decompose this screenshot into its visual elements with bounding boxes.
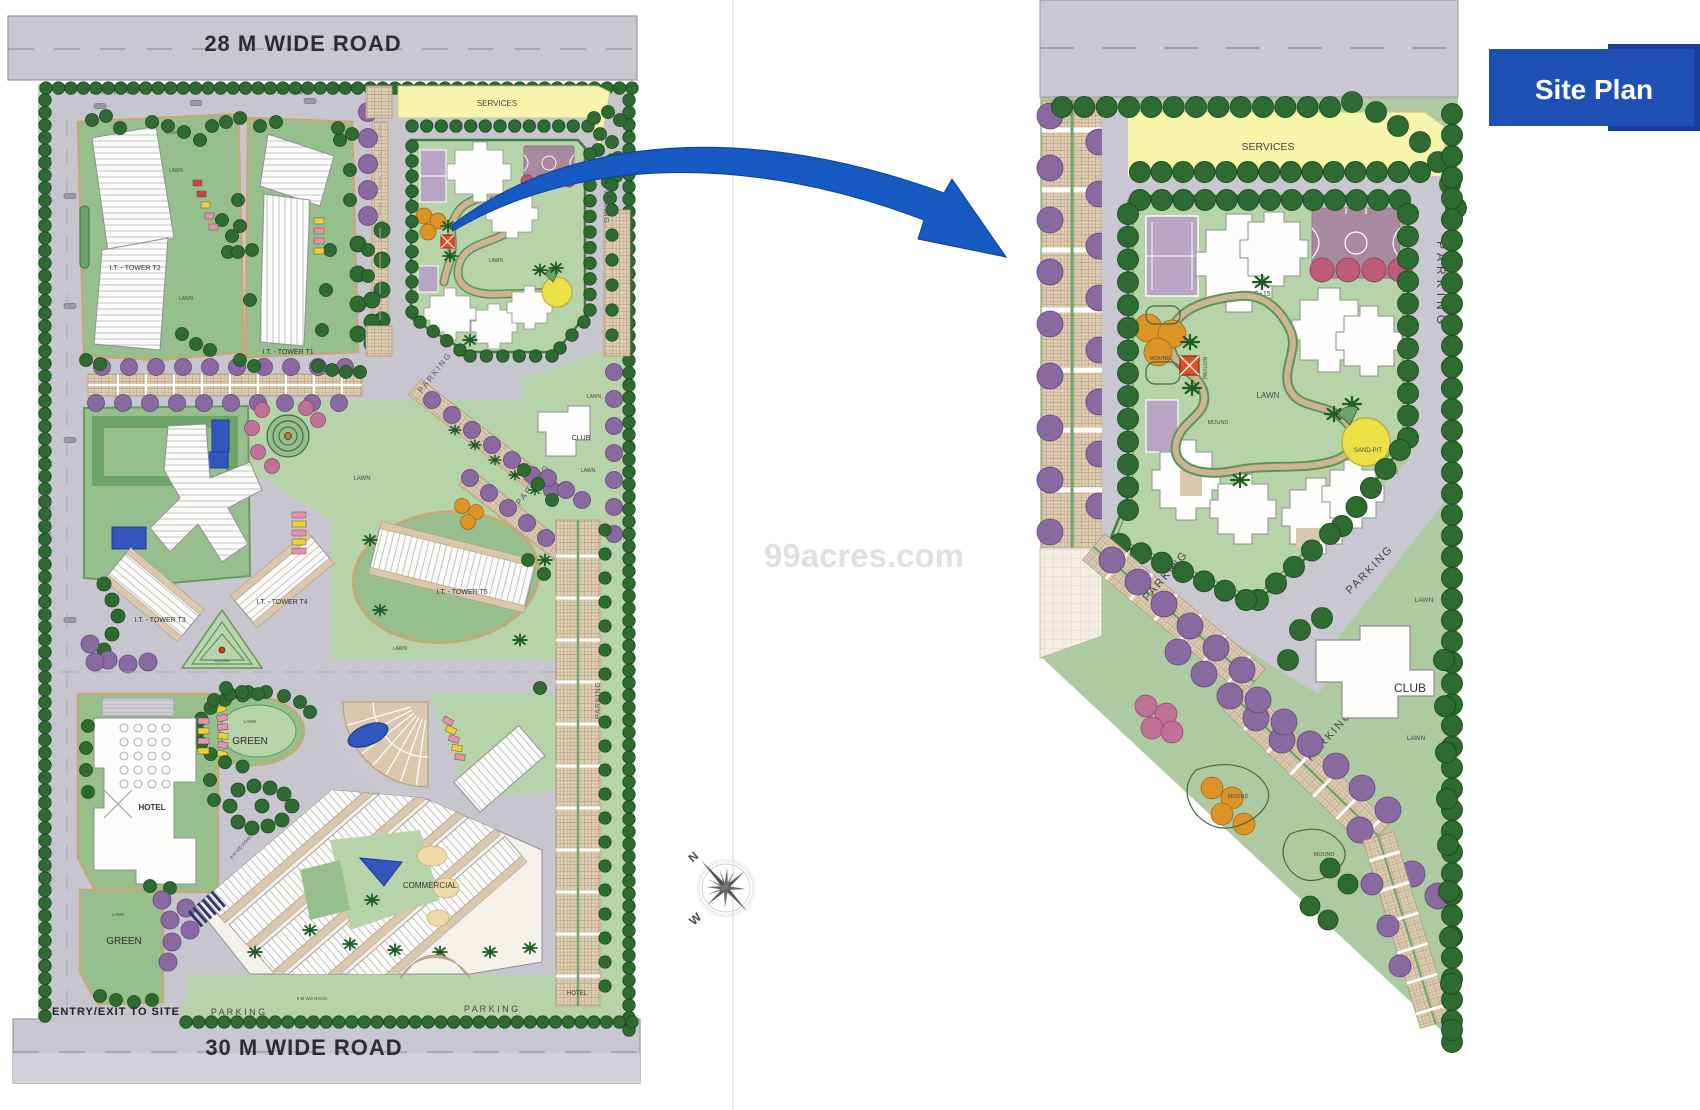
svg-text:PARKING: PARKING bbox=[595, 681, 602, 719]
svg-text:PARKING: PARKING bbox=[602, 186, 609, 224]
svg-text:8 M WD ROAD: 8 M WD ROAD bbox=[297, 996, 328, 1001]
svg-text:ENTRY/EXIT TO SITE: ENTRY/EXIT TO SITE bbox=[52, 1006, 180, 1018]
svg-text:LAWN: LAWN bbox=[581, 468, 596, 474]
svg-text:LAWN: LAWN bbox=[1407, 735, 1426, 742]
svg-text:LAWN: LAWN bbox=[353, 476, 370, 482]
svg-text:PARKING: PARKING bbox=[44, 496, 53, 543]
svg-text:MOUND: MOUND bbox=[214, 658, 229, 663]
svg-text:LAWN: LAWN bbox=[179, 296, 194, 302]
svg-text:LAWN: LAWN bbox=[489, 258, 504, 264]
svg-text:LAWN: LAWN bbox=[393, 646, 408, 652]
svg-text:LAWN: LAWN bbox=[1257, 391, 1280, 400]
svg-text:MOUND: MOUND bbox=[1208, 420, 1229, 426]
svg-text:GREEN: GREEN bbox=[232, 736, 268, 747]
svg-text:LAWN: LAWN bbox=[112, 912, 125, 917]
svg-text:CLUB: CLUB bbox=[572, 435, 591, 442]
svg-text:I.T. - TOWER T1: I.T. - TOWER T1 bbox=[262, 349, 313, 356]
svg-text:MOUND: MOUND bbox=[1314, 852, 1335, 858]
svg-text:LAWN: LAWN bbox=[1415, 597, 1434, 604]
svg-text:P A R K I N G: P A R K I N G bbox=[211, 1007, 265, 1017]
svg-text:I.T. - TOWER T4: I.T. - TOWER T4 bbox=[256, 599, 307, 606]
svg-text:HOTEL: HOTEL bbox=[567, 991, 588, 997]
svg-text:LAWN: LAWN bbox=[587, 394, 602, 400]
svg-text:I.T. - TOWER T2: I.T. - TOWER T2 bbox=[109, 265, 160, 272]
svg-text:COMMERCIAL: COMMERCIAL bbox=[403, 881, 458, 890]
svg-text:99acres.com: 99acres.com bbox=[764, 537, 964, 574]
svg-text:LAWN: LAWN bbox=[169, 168, 184, 174]
svg-text:PARKING: PARKING bbox=[44, 154, 53, 201]
svg-text:HOTEL: HOTEL bbox=[138, 803, 165, 812]
svg-text:SERVICES: SERVICES bbox=[1242, 141, 1295, 153]
svg-text:LAWN: LAWN bbox=[244, 719, 257, 724]
svg-text:MOUND: MOUND bbox=[166, 130, 184, 135]
svg-text:PAVILION: PAVILION bbox=[1203, 356, 1209, 379]
svg-text:SERVICES: SERVICES bbox=[477, 99, 517, 108]
svg-text:MOUND: MOUND bbox=[1228, 794, 1249, 800]
svg-text:28 M WIDE ROAD: 28 M WIDE ROAD bbox=[204, 31, 401, 56]
svg-text:P A R K I N G: P A R K I N G bbox=[464, 1004, 518, 1014]
svg-text:I.T. - TOWER T3: I.T. - TOWER T3 bbox=[134, 617, 185, 624]
svg-text:PARKING: PARKING bbox=[44, 838, 53, 885]
svg-text:MOUND: MOUND bbox=[1150, 356, 1171, 362]
svg-text:GREEN: GREEN bbox=[106, 936, 142, 947]
svg-text:SAND-PIT: SAND-PIT bbox=[1354, 448, 1382, 454]
svg-text:Site Plan: Site Plan bbox=[1535, 74, 1653, 105]
svg-text:30 M WIDE ROAD: 30 M WIDE ROAD bbox=[205, 1035, 402, 1060]
svg-text:CLUB: CLUB bbox=[1394, 681, 1426, 695]
svg-text:I.T. - TOWER T5: I.T. - TOWER T5 bbox=[436, 589, 487, 596]
